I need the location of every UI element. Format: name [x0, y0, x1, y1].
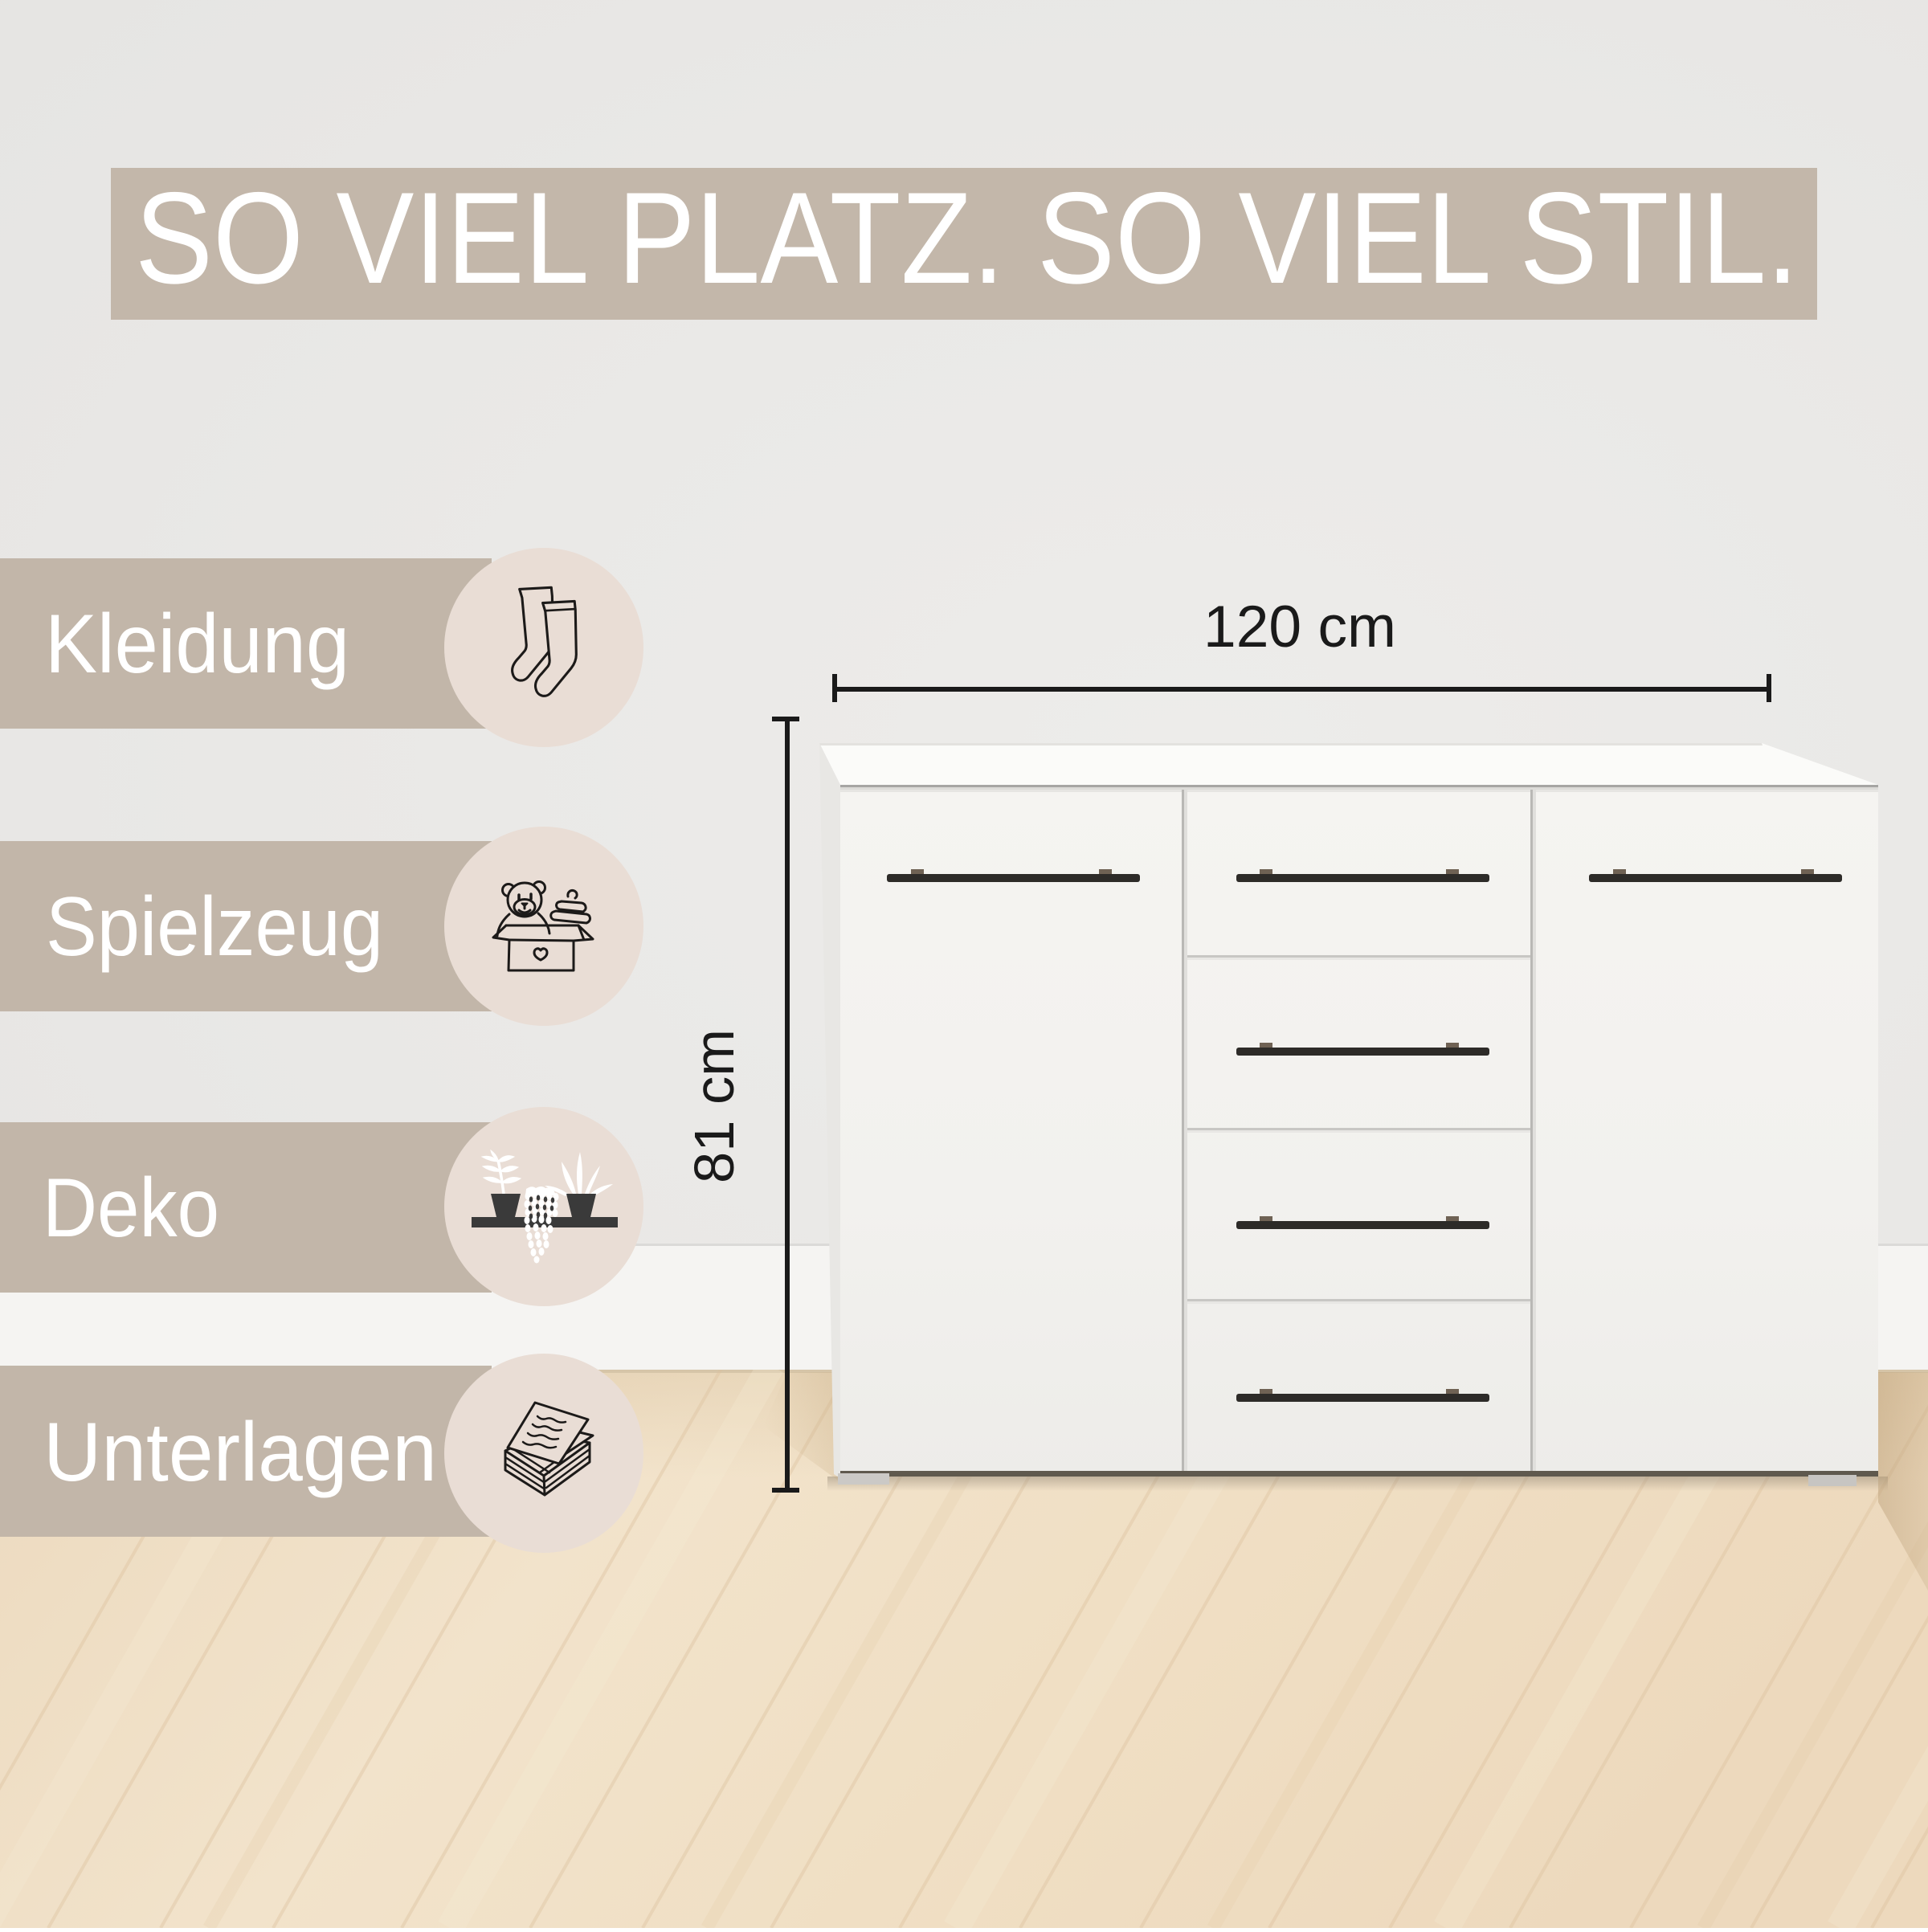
- svg-text:Deko: Deko: [43, 1162, 219, 1255]
- svg-text:Kleidung: Kleidung: [45, 598, 349, 691]
- svg-text:Spielzeug: Spielzeug: [46, 880, 383, 974]
- svg-text:SO VIEL PLATZ. SO VIEL STIL.: SO VIEL PLATZ. SO VIEL STIL.: [135, 165, 1799, 311]
- svg-text:Unterlagen: Unterlagen: [43, 1406, 437, 1499]
- svg-text:120 cm: 120 cm: [1203, 594, 1396, 660]
- svg-text:81 cm: 81 cm: [683, 1029, 745, 1183]
